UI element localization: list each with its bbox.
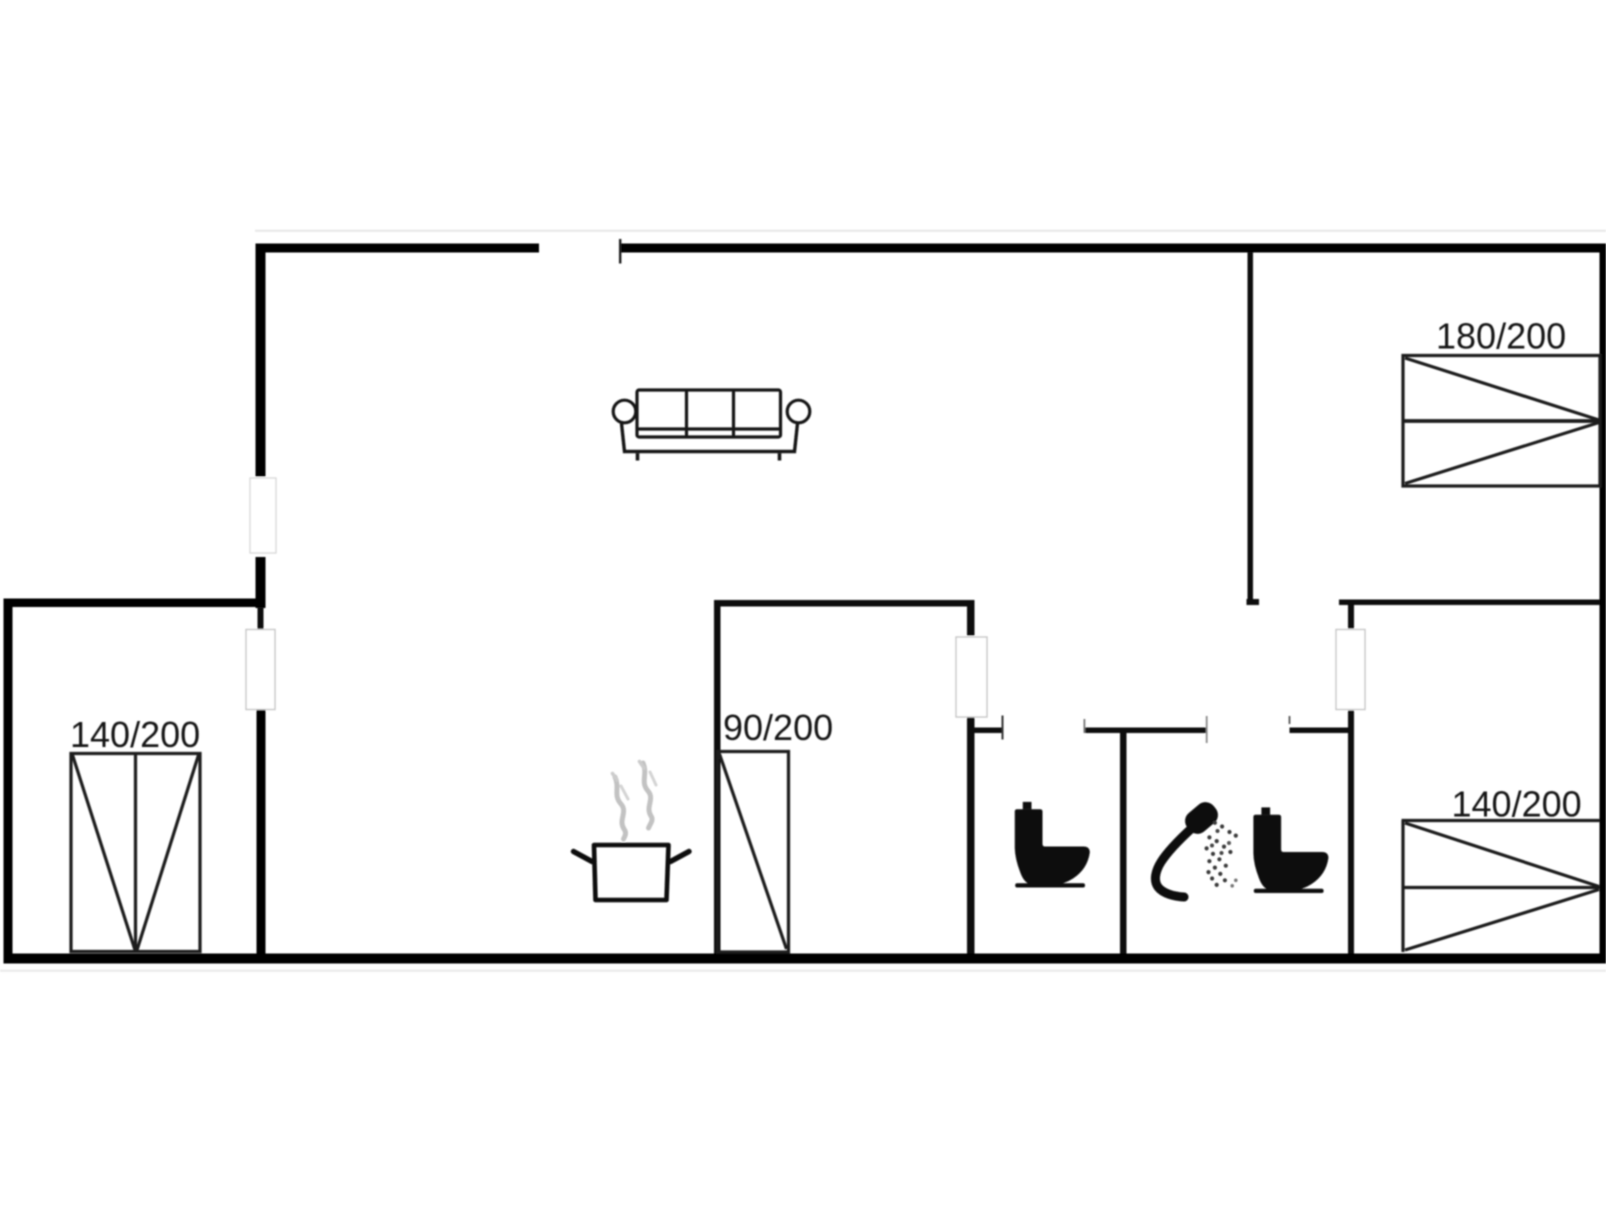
svg-text:140/200: 140/200	[70, 714, 200, 755]
svg-text:180/200: 180/200	[1436, 316, 1566, 357]
svg-text:140/200: 140/200	[1452, 784, 1582, 825]
svg-text:90/200: 90/200	[723, 707, 833, 748]
